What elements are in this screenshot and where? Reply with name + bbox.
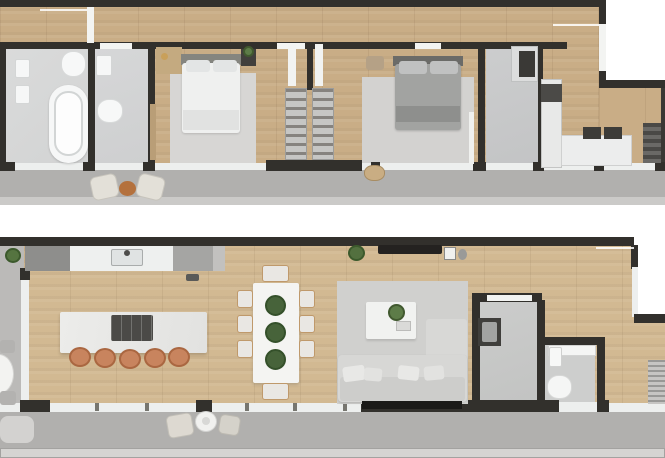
dining-chair — [299, 290, 315, 308]
dresser-decor — [161, 53, 168, 60]
lower-corner-void — [638, 237, 665, 316]
lower-void-sill — [632, 267, 638, 317]
sill-post — [83, 162, 95, 171]
coffee-table-plant — [388, 304, 405, 321]
sill-tick — [145, 403, 149, 411]
sofa-pillow — [397, 365, 419, 381]
sill-post — [143, 162, 155, 171]
dining-chair — [262, 265, 289, 282]
bed2-pillow — [399, 61, 427, 74]
terrace2-chair — [165, 412, 195, 439]
vanity-sink-2 — [15, 85, 30, 104]
island-cooktop — [111, 315, 153, 341]
wardrobe-2 — [312, 88, 334, 160]
sofa-pillow — [423, 365, 444, 381]
dining-plant — [265, 349, 286, 370]
kitchen-counter-cap — [213, 246, 225, 271]
louver-unit — [648, 360, 665, 404]
dining-chair — [299, 340, 315, 358]
utility-counter — [561, 135, 632, 166]
lower-void-wall-bottom — [634, 314, 665, 323]
balcony-chair — [0, 391, 16, 405]
dining-chair — [237, 290, 253, 308]
wall-under-closets — [266, 160, 362, 171]
hall-door-swing — [40, 9, 87, 11]
bed1-throw — [183, 110, 239, 130]
lower-bottom-sill-3 — [609, 403, 665, 412]
hall-door-leaf — [87, 7, 94, 43]
bath1-toilet — [61, 51, 86, 77]
bar-stool — [119, 349, 141, 369]
upper-right-wall — [661, 88, 665, 170]
terrace2-lounge — [0, 416, 34, 443]
coffee-table-books — [396, 321, 411, 331]
terrace2-cup — [202, 417, 210, 425]
utility-cabinet-dark — [541, 84, 562, 102]
sill-post — [655, 162, 665, 171]
dining-chair — [262, 383, 289, 400]
lower-top-wall — [0, 237, 634, 246]
upper-void-wall-bottom — [599, 80, 665, 88]
washer-drum — [482, 322, 497, 342]
closet-door-panel — [315, 44, 323, 86]
sofa-pillow — [342, 365, 366, 383]
upper-top-wall — [0, 0, 602, 7]
wall-closet-divider — [307, 42, 313, 90]
bedroom2-sliding-door — [469, 112, 474, 164]
entry-door-gap — [487, 295, 532, 301]
wardrobe-1 — [285, 88, 307, 160]
dining-plant — [265, 322, 286, 343]
bar-stool — [69, 347, 91, 367]
dining-plant — [265, 295, 286, 316]
wall-bath1-bath2 — [88, 42, 95, 168]
bar-stool — [94, 348, 116, 368]
bedroom2-door-gap — [415, 43, 441, 49]
terrace2-chair — [218, 413, 242, 436]
nightstand-plant — [243, 46, 254, 57]
bed1-pillow — [213, 60, 237, 72]
bar-stool — [168, 347, 190, 367]
right-door-leaf — [599, 24, 606, 71]
bed2-pillow — [430, 61, 458, 74]
counter-deco — [186, 274, 199, 281]
sill-post — [473, 162, 486, 171]
wall-powder-top — [537, 337, 605, 345]
dining-chair — [299, 315, 315, 333]
bath2-wood-door — [150, 104, 156, 160]
bedroom2-bench — [366, 56, 384, 70]
right-door-swing — [553, 24, 599, 26]
wall-entry-powder — [537, 300, 545, 412]
tv-console — [362, 401, 462, 409]
sofa-pillow — [363, 367, 382, 382]
wall-powder-right — [597, 337, 605, 407]
floor-plan-stage — [0, 0, 665, 458]
upper-corner-void — [606, 0, 665, 80]
sill-tick — [95, 403, 99, 411]
kitchen-counter-dark — [25, 246, 70, 271]
lower-terrace-edge — [0, 448, 665, 458]
laundry-stack — [604, 127, 622, 139]
bath2-door-gap — [100, 43, 132, 49]
living-plant-top — [348, 245, 365, 261]
dining-chair — [237, 315, 253, 333]
closet-door-panel — [288, 44, 296, 86]
kitchen-counter-gray — [173, 246, 213, 271]
decor-round — [458, 249, 467, 260]
wall-bedroom2-bath3 — [478, 42, 485, 168]
sill-tick — [293, 403, 297, 411]
lower-bottom-sill-2 — [559, 402, 597, 412]
lower-bottom-sill — [0, 403, 363, 412]
balcony-chair — [0, 340, 15, 353]
hall-door-swing-right — [596, 247, 634, 249]
sill-post — [0, 162, 15, 171]
bedroom1-dresser — [156, 47, 182, 74]
decor-frame — [444, 247, 456, 260]
bath2-sink — [96, 55, 112, 76]
vanity-sink-1 — [15, 59, 30, 78]
lower-bottom-post-2 — [597, 400, 609, 412]
sill-tick — [245, 403, 249, 411]
powder-sink — [549, 347, 562, 367]
upper-left-wall — [0, 42, 6, 170]
terrace-stool-orange — [119, 181, 136, 196]
bathtub-inner — [54, 91, 83, 156]
sofa-seat — [340, 377, 465, 401]
sill-tick — [343, 403, 347, 411]
balcony-plant — [5, 248, 21, 263]
terrace-wicker-pouf — [364, 165, 385, 181]
bath2-toilet — [97, 99, 123, 123]
shower-caddy — [519, 51, 535, 77]
bar-stool — [144, 348, 166, 368]
powder-toilet — [547, 375, 572, 399]
dining-chair — [237, 340, 253, 358]
wall-entry-left — [472, 293, 480, 412]
lower-terrace — [0, 412, 665, 448]
lower-bottom-post — [20, 400, 50, 412]
bed2-throw — [396, 106, 460, 122]
appliance-bank — [643, 123, 661, 163]
lower-left-sill — [21, 272, 29, 406]
bed1-pillow — [186, 60, 210, 72]
laundry-stack — [583, 127, 601, 139]
kitchen-faucet — [124, 250, 130, 256]
wall-tv-top — [378, 245, 442, 254]
